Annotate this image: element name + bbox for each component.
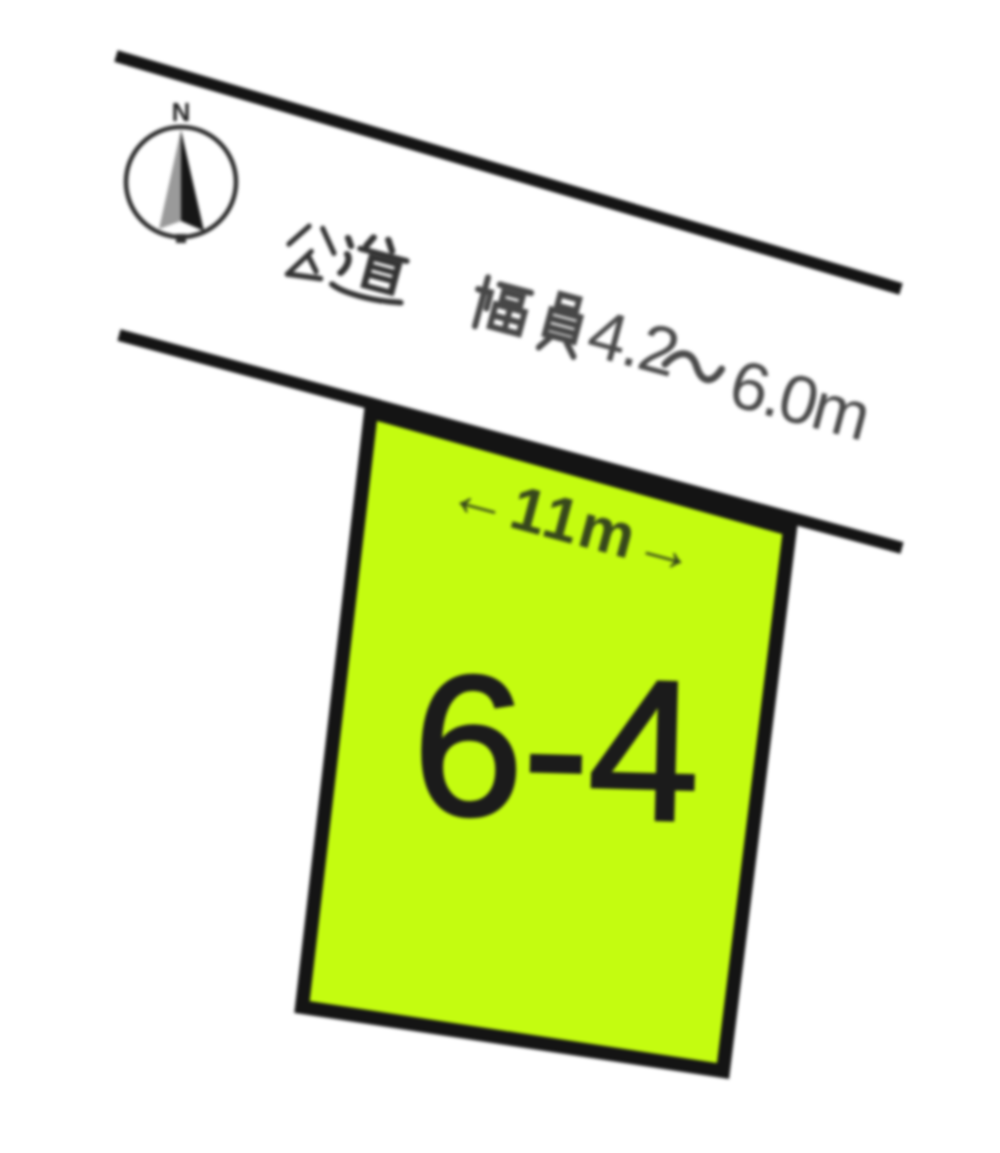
svg-text:6-4: 6-4 [410, 633, 702, 863]
svg-text:4.2: 4.2 [580, 295, 685, 391]
svg-text:N: N [172, 97, 191, 127]
svg-text:6.0m: 6.0m [722, 345, 876, 454]
